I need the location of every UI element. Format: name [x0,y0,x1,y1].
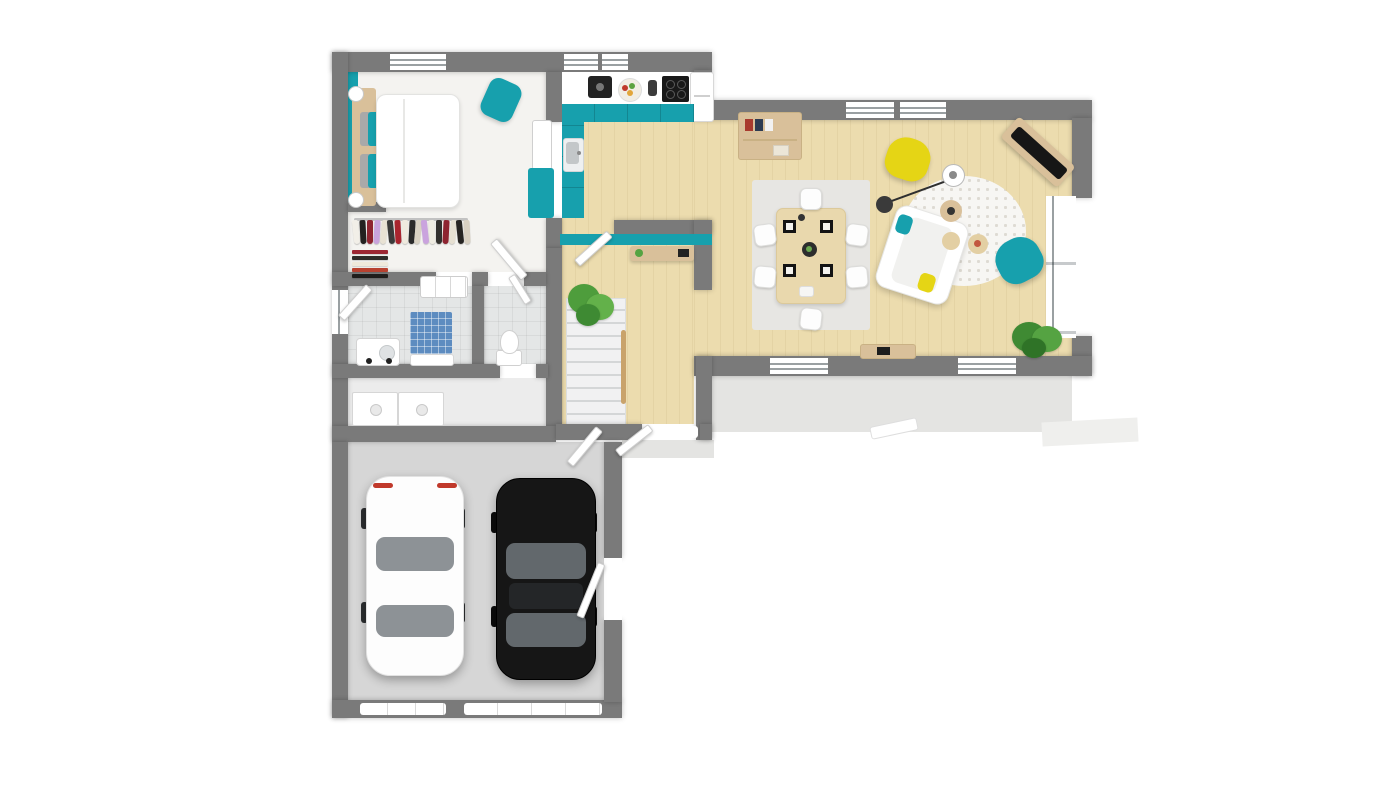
stool-red-item [974,240,981,247]
fruit-orange [627,90,633,96]
garment [436,220,442,244]
sink-faucet [577,151,581,155]
wall-entry-bottom-right [700,424,712,440]
sideboard [860,344,916,359]
wall-entry-west [546,248,562,426]
burner-3 [666,90,675,99]
garment [402,220,408,244]
kitchen-sink [563,138,584,172]
folded-garment [352,250,388,254]
living-top-window-b [900,102,946,118]
white-car [366,476,464,676]
table-dish [799,286,814,297]
dining-chair-bottom [799,307,823,331]
centerpiece-green [806,246,812,252]
book-spine-red [745,119,753,131]
folded-garment [352,268,388,272]
burner-2 [677,80,686,89]
fridge-handle [694,95,710,97]
shelf-divider [743,139,797,141]
wall-garage-left [332,442,348,718]
wall-laundry-top-b [536,364,548,378]
black-car-rear-window [506,543,586,579]
garment [394,220,401,244]
dining-chair-left-b [753,265,777,289]
garage-side-door-opening [604,558,622,620]
coffee-machine [588,76,612,98]
white-car-rear-window [376,537,454,571]
wall-garage-right-lower [604,620,622,702]
arc-lamp-base [876,196,893,213]
table-centerpiece [802,242,817,257]
bedroom-shelf-unit [532,120,552,170]
wall-living-right-upper [1072,118,1092,198]
placemat-4 [820,264,833,277]
garment [359,220,366,244]
wall-bath-wc-divider [472,286,484,366]
cooktop [662,76,689,102]
dining-chair-right-b [845,265,869,289]
bedside-lamp-b [348,192,364,208]
garage-door-left [360,703,446,715]
entry-plant-leaf-c [576,304,600,326]
bedside-lamp-a [348,86,364,102]
desk-nook-teal-band [560,234,712,245]
stool-glasses [940,200,962,222]
storage-box [773,145,789,156]
bed-duvet [376,94,460,208]
bed-headboard [352,88,376,206]
black-car-roof [509,583,583,609]
garment [367,220,373,244]
stool-tray [968,234,988,254]
folded-garment [352,256,388,260]
table-deco-small [798,214,805,221]
living-top-window-a [846,102,894,118]
wall-garage-right-upper [604,442,622,558]
stool-glass-item [947,207,955,215]
bathroom-item-dark-b [386,358,392,364]
placemat-2 [820,220,833,233]
wall-desk-nook-vertical [694,220,712,290]
living-plant-leaf-c [1022,338,1046,358]
kitchen-teal-cabinets-top [562,104,694,122]
placemat-3 [783,264,796,277]
spice-grinder [648,80,657,96]
fruit-green [629,83,635,89]
wall-top-outer [332,52,712,72]
white-car-taillight-right [437,483,457,488]
living-south-window-a [770,358,828,374]
bookshelf [738,112,802,160]
wall-bed-kitchen-upper [546,72,562,122]
bathroom-item-dark-a [366,358,372,364]
wall-left-outer [332,52,348,442]
burner-4 [677,90,686,99]
placemat-1 [783,220,796,233]
washer [352,392,398,426]
shower-tray [410,354,454,366]
radio [877,347,890,355]
stair-railing [621,330,626,404]
book-spine-dark [755,119,763,131]
toilet-bowl [500,330,519,354]
bedroom-teal-cabinet [528,168,554,218]
white-car-windshield [376,605,454,637]
book-spine-white [765,119,773,131]
black-car [496,478,596,680]
garment [463,220,470,244]
laptop [678,249,689,257]
duvet-fold-line [403,99,405,203]
dryer-dial [416,404,428,416]
living-south-window-b [958,358,1016,374]
kitchen-window-b [602,54,628,70]
wall-bath-top-right [472,272,488,286]
arc-lamp-shade [942,164,965,187]
garden-path [1041,418,1138,447]
floor-plan-canvas [0,0,1400,788]
folded-garment [352,274,388,278]
garage-door-right [464,703,602,715]
desk [630,246,694,261]
dryer [398,392,444,426]
living-bay-windows [1046,196,1076,338]
bedroom-window [390,54,446,70]
fruit-bowl [618,78,642,102]
folded-clothes-stack [352,250,388,280]
garment [429,220,436,244]
coffee-machine-knob [596,83,604,91]
wall-laundry-top-a [332,364,500,378]
lamp-bulb [949,171,957,179]
white-car-taillight-left [373,483,393,488]
shower-mosaic-wall [410,312,452,354]
kitchen-window-a [564,54,598,70]
bathroom-vanity [356,338,400,366]
burner-1 [666,80,675,89]
desk-plant [635,249,643,257]
dining-chair-top [800,188,822,210]
dressing-dresser [420,276,468,298]
folded-garment [352,262,388,266]
wall-living-bottom [694,356,1092,376]
dining-chair-left-a [753,223,778,248]
wall-garage-top [332,426,556,442]
black-car-windshield [506,613,586,647]
clothes-rail-garments [353,220,471,246]
washer-dial [370,404,382,416]
dining-chair-right-a [845,223,870,248]
stool-small [942,232,960,250]
